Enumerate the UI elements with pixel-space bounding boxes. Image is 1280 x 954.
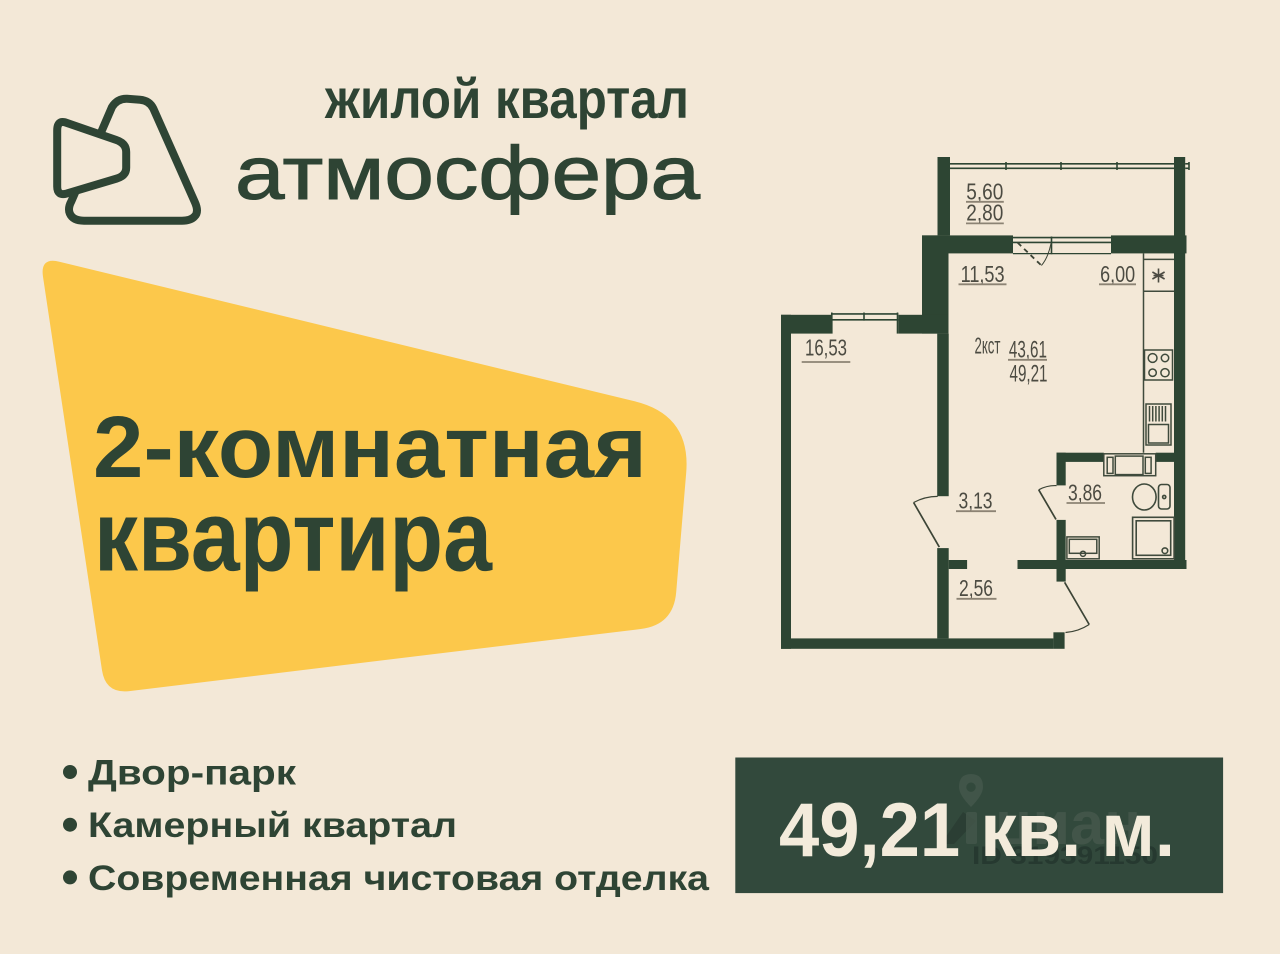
svg-text:2кст: 2кст: [975, 332, 1001, 358]
svg-text:11,53: 11,53: [961, 261, 1005, 287]
svg-text:жилой квартал: жилой квартал: [324, 67, 689, 130]
svg-text:Камерный квартал: Камерный квартал: [88, 806, 457, 845]
svg-text:квартира: квартира: [94, 481, 493, 593]
svg-text:2,80: 2,80: [966, 200, 1003, 226]
svg-text:6,00: 6,00: [1100, 261, 1135, 287]
svg-text:3,86: 3,86: [1068, 480, 1102, 506]
svg-text:Современная чистовая отделка: Современная чистовая отделка: [88, 859, 710, 898]
svg-text:16,53: 16,53: [805, 335, 847, 361]
svg-text:49,21: 49,21: [1010, 361, 1048, 388]
svg-text:3,13: 3,13: [959, 488, 993, 514]
svg-text:2,56: 2,56: [959, 575, 993, 601]
svg-text:атмосфера: атмосфера: [235, 131, 700, 215]
svg-text:Двор-парк: Двор-парк: [88, 754, 297, 793]
svg-text:49,21 кв. м.: 49,21 кв. м.: [779, 788, 1175, 873]
